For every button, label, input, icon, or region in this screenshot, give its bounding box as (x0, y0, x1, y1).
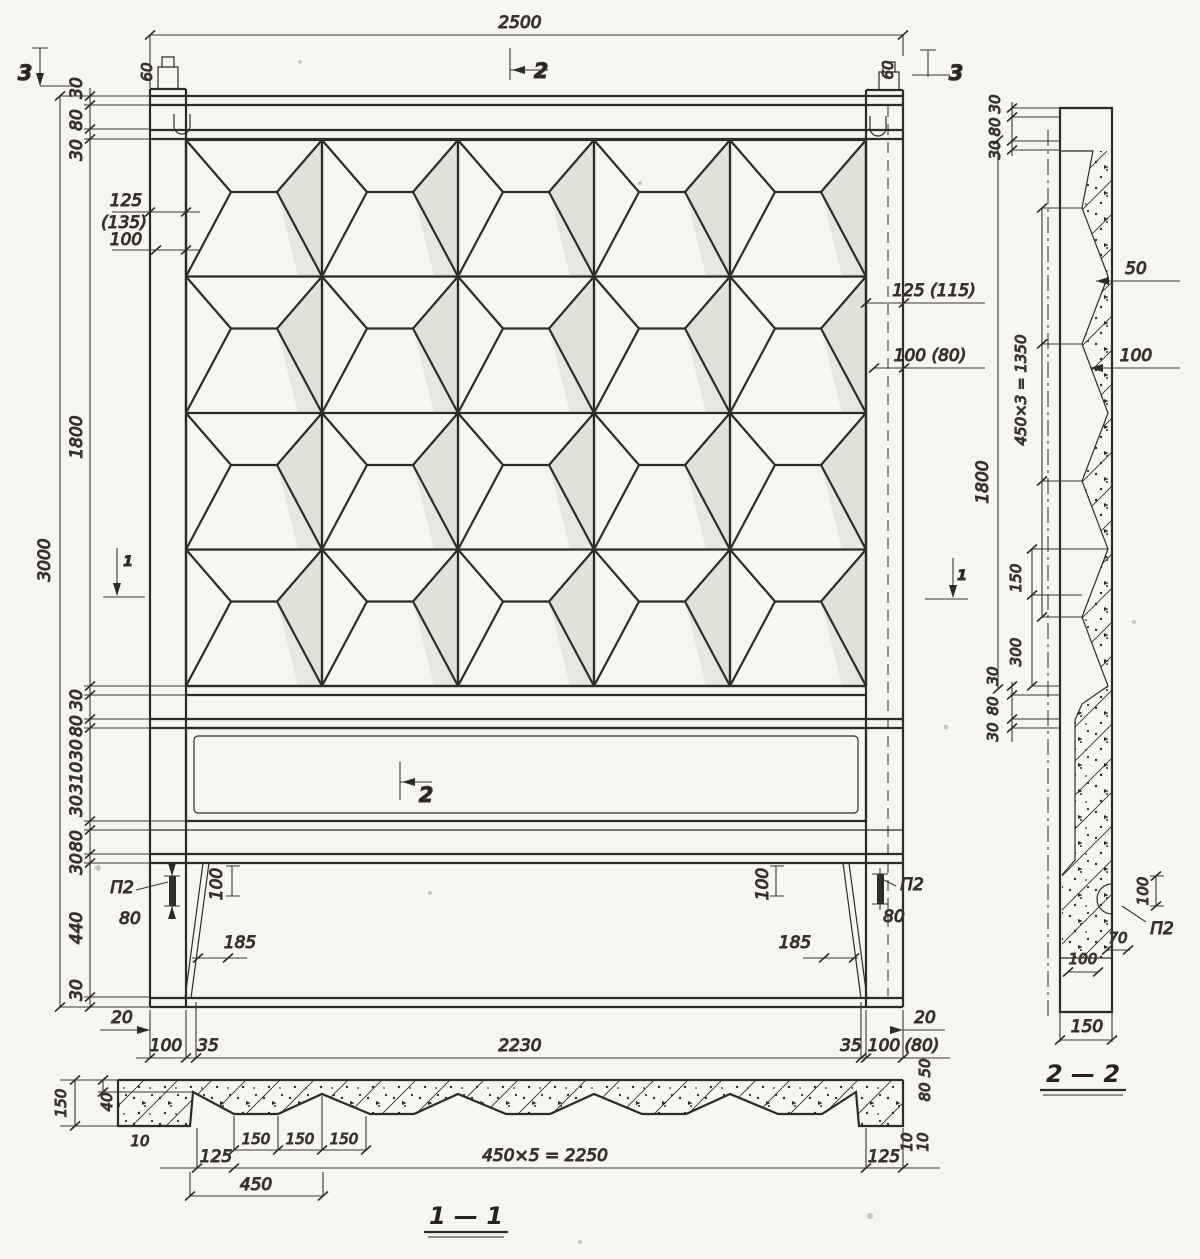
fence-panel-drawing: 2 2 3 3 1 1 2500 3000 (0, 0, 1200, 1259)
section-1-1: 150 40 10 150 150 150 125 450×5 = 2250 1… (52, 1058, 940, 1237)
left-post-tenon (158, 57, 178, 89)
dim-150-b: 150 (286, 1130, 315, 1148)
dim-overall-height: 3000 (35, 538, 55, 581)
diamond-pattern-panel (186, 140, 866, 686)
dim-30: 30 (67, 979, 87, 1001)
dim-450: 450 (240, 1175, 272, 1195)
right-leg (843, 863, 867, 998)
right-post (866, 90, 903, 1007)
dim-300-sec: 300 (1007, 638, 1025, 667)
dim-30: 30 (67, 77, 87, 99)
dim-10-end-b: 10 (914, 1132, 932, 1151)
p2-label-left: П2 (110, 878, 134, 898)
dim-310: 310 (67, 762, 87, 794)
dim-60-right-tenon: 60 (879, 60, 897, 79)
section-2-2-title: 2 — 2 (1046, 1060, 1120, 1088)
dim-80: 80 (67, 715, 87, 737)
dim-overall-width: 2500 (498, 13, 541, 33)
section-marker-3-left: 3 (18, 61, 33, 85)
section-marker-2-mid: 2 (419, 783, 434, 807)
p2-label-right: П2 (900, 875, 924, 895)
dim-80: 80 (67, 830, 87, 852)
dim-30: 30 (67, 853, 87, 875)
dim-80-right-loop: 80 (883, 907, 905, 927)
dim-100-left-post: 100 (150, 1036, 182, 1056)
dim-150-c: 150 (330, 1130, 359, 1148)
dim-100-rib: 100 (1120, 346, 1152, 366)
dim-100: 100 (110, 230, 142, 250)
dim-150-a: 150 (242, 1130, 271, 1148)
front-elevation (150, 57, 903, 1007)
dim-1800: 1800 (67, 415, 87, 458)
dim-80-alt: (80) (905, 1036, 940, 1056)
dim-150-sec: 150 (1007, 564, 1025, 593)
dim-30: 30 (986, 94, 1004, 113)
section-markers: 2 2 3 3 1 1 (18, 48, 968, 807)
section-marker-3-right: 3 (949, 61, 964, 85)
dim-125: 125 (110, 191, 142, 211)
dim-30: 30 (67, 795, 87, 817)
dim-35-right: 35 (840, 1036, 862, 1056)
dim-2230: 2230 (498, 1036, 541, 1056)
dim-185-right: 185 (779, 933, 811, 953)
dim-125-115: 125 (115) (892, 281, 976, 301)
dim-100-hook: 100 (1134, 877, 1152, 906)
section-marker-2-top: 2 (534, 59, 549, 83)
left-post (150, 89, 186, 1007)
dim-125-left-end: 125 (200, 1147, 232, 1167)
dim-30: 30 (67, 689, 87, 711)
left-leg (185, 863, 209, 998)
top-rail (150, 96, 903, 105)
dim-185-left: 185 (224, 933, 256, 953)
dim-60-left-tenon: 60 (138, 62, 156, 81)
dim-50-web: 50 (1125, 259, 1147, 279)
dim-150-width: 150 (1071, 1017, 1103, 1037)
dim-80: 80 (67, 109, 87, 131)
section-2-2: 30 80 30 1800 450×3 = 1350 150 300 30 80 (973, 94, 1180, 1095)
dim-150-depth: 150 (52, 1089, 70, 1118)
second-rail (150, 130, 903, 139)
dim-450x3: 450×3 = 1350 (1012, 334, 1030, 445)
dim-80: 80 (984, 696, 1002, 715)
right-hook (870, 116, 886, 136)
dim-80: 80 (986, 117, 1004, 136)
dim-80-left-loop: 80 (119, 909, 141, 929)
dim-20-right: 20 (914, 1008, 936, 1028)
plain-panel-outer (186, 728, 866, 821)
dim-30: 30 (984, 722, 1002, 741)
middle-rail (150, 719, 903, 728)
dim-100-right-leg: 100 (753, 868, 773, 900)
dim-20-left: 20 (111, 1008, 133, 1028)
blueprint-sheet: 2 2 3 3 1 1 2500 3000 (0, 0, 1200, 1259)
dim-50-end: 50 (916, 1058, 934, 1077)
dim-30: 30 (67, 139, 87, 161)
dim-10-left: 10 (130, 1132, 149, 1150)
dim-125-right-end: 125 (868, 1147, 900, 1167)
dim-1800-sec: 1800 (973, 460, 993, 503)
base-beam (150, 854, 903, 1007)
section-marker-1-right: 1 (957, 568, 967, 584)
dim-70-hook: 70 (1108, 929, 1127, 947)
dim-100-80: 100 (80) (894, 346, 967, 366)
p2-label-sec: П2 (1150, 919, 1174, 939)
dim-440: 440 (67, 912, 87, 944)
dim-80-end: 80 (916, 1082, 934, 1101)
section-marker-1-left: 1 (123, 554, 133, 570)
dim-100-left-leg: 100 (207, 868, 227, 900)
dim-30: 30 (984, 666, 1002, 685)
plain-panel-inner (194, 736, 858, 813)
dim-40-web: 40 (98, 1092, 116, 1111)
dim-100-leg-sec: 100 (1069, 950, 1098, 968)
section-1-1-title: 1 — 1 (429, 1202, 503, 1230)
dim-450x5: 450×5 = 2250 (482, 1146, 608, 1166)
dim-35-left: 35 (197, 1036, 219, 1056)
dim-30: 30 (67, 739, 87, 761)
dim-100-right-post: 100 (868, 1036, 900, 1056)
